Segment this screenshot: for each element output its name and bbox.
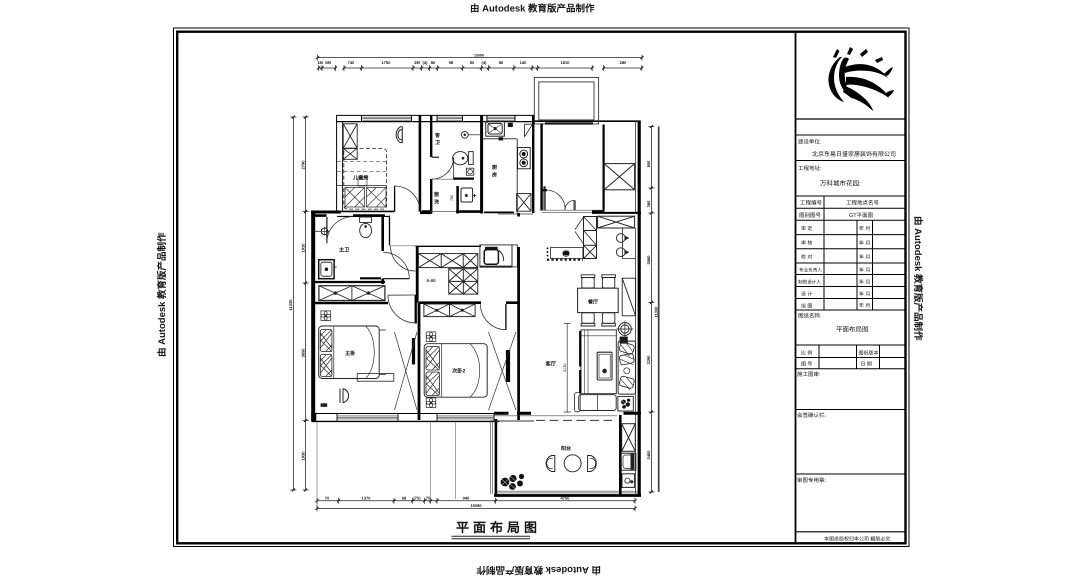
svg-text:940: 940 (463, 496, 470, 501)
svg-text:厨: 厨 (492, 164, 497, 171)
svg-text:3290: 3290 (646, 355, 651, 365)
svg-text:万科城市花园:: 万科城市花园: (820, 180, 861, 188)
svg-text:年 月: 年 月 (859, 302, 870, 309)
svg-text:3130: 3130 (563, 364, 567, 372)
svg-text:年 月: 年 月 (859, 291, 870, 298)
svg-text:图 号: 图 号 (801, 362, 812, 368)
svg-text:校 对: 校 对 (801, 254, 812, 261)
svg-text:工程编号: 工程编号 (800, 200, 823, 207)
svg-text:4750: 4750 (561, 496, 571, 501)
svg-text:餐厅: 餐厅 (587, 299, 598, 306)
svg-text:施工图审:: 施工图审: (797, 371, 821, 378)
svg-text:1750: 1750 (382, 60, 392, 65)
svg-text:740: 740 (348, 60, 355, 65)
svg-text:儿童房: 儿童房 (352, 175, 369, 182)
svg-text:2M: 2M (414, 60, 420, 65)
svg-text:房: 房 (492, 172, 497, 179)
svg-text:1370: 1370 (362, 496, 372, 501)
svg-text:专业负责人: 专业负责人 (799, 268, 822, 273)
svg-text:图别图号: 图别图号 (799, 212, 822, 219)
svg-text:工程地点名号: 工程地点名号 (846, 200, 880, 207)
svg-text:86: 86 (431, 60, 436, 65)
svg-text:比 例: 比 例 (801, 350, 812, 357)
svg-text:由 Autodesk 教育版产品制作: 由 Autodesk 教育版产品制作 (476, 564, 601, 576)
svg-text:客厅: 客厅 (546, 361, 557, 368)
svg-text:年 月: 年 月 (859, 267, 870, 274)
svg-text:11330: 11330 (288, 299, 293, 311)
svg-text:1910: 1910 (300, 243, 305, 253)
svg-text:主卫: 主卫 (339, 247, 350, 254)
svg-text:工程地址:: 工程地址: (798, 165, 822, 172)
svg-text:2660: 2660 (646, 255, 651, 265)
svg-text:68: 68 (402, 496, 407, 501)
svg-text:(4): (4) (482, 60, 488, 65)
svg-text:审 核: 审 核 (801, 240, 812, 247)
svg-text:1810: 1810 (561, 60, 571, 65)
svg-text:年 月: 年 月 (859, 225, 870, 232)
svg-text:(4): (4) (423, 60, 429, 65)
svg-text:会签确认栏:: 会签确认栏: (797, 412, 827, 419)
svg-text:11330: 11330 (654, 306, 659, 318)
svg-text:绘 图: 绘 图 (801, 303, 812, 310)
svg-text:3650: 3650 (300, 348, 305, 358)
svg-text:日 期: 日 期 (861, 361, 872, 368)
svg-text:年 月: 年 月 (859, 279, 870, 286)
svg-text:86: 86 (499, 60, 504, 65)
svg-text:图纸名称:: 图纸名称: (798, 313, 822, 320)
svg-text:卫: 卫 (435, 140, 440, 146)
svg-text:由 Autodesk 教育版产品制作: 由 Autodesk 教育版产品制作 (912, 216, 924, 341)
svg-text:洗: 洗 (434, 199, 439, 206)
svg-text:审图专用章:: 审图专用章: (797, 477, 827, 484)
svg-text:1M: 1M (317, 60, 323, 65)
svg-text:本图纸版权归本公司 翻版必究: 本图纸版权归本公司 翻版必究 (824, 536, 890, 543)
svg-text:设 计: 设 计 (801, 291, 812, 298)
svg-text:80: 80 (470, 60, 475, 65)
svg-text:主卧: 主卧 (345, 350, 356, 357)
svg-text:780: 780 (450, 195, 454, 201)
svg-text:由 Autodesk 教育版产品制作: 由 Autodesk 教育版产品制作 (156, 232, 168, 357)
svg-text:70: 70 (325, 496, 330, 501)
svg-text:阳台: 阳台 (561, 445, 571, 452)
svg-text:制图设计人: 制图设计人 (798, 280, 821, 285)
svg-text:15080: 15080 (474, 53, 484, 57)
svg-text:审 定: 审 定 (801, 225, 812, 232)
svg-text:平面布局图: 平面布局图 (456, 520, 541, 535)
svg-text:850: 850 (646, 160, 651, 167)
svg-text:A-00: A-00 (427, 278, 437, 283)
svg-text:GT平面图: GT平面图 (849, 212, 874, 219)
svg-text:15080: 15080 (470, 503, 482, 508)
svg-text:2790: 2790 (300, 160, 305, 170)
svg-text:(75): (75) (413, 496, 421, 501)
svg-text:盥: 盥 (434, 191, 439, 198)
svg-text:75: 75 (426, 496, 431, 501)
svg-text:2400: 2400 (646, 450, 651, 460)
svg-text:年 月: 年 月 (859, 254, 870, 261)
svg-text:360: 360 (646, 200, 651, 207)
svg-text:建设单位:: 建设单位: (798, 139, 822, 146)
svg-text:98: 98 (449, 60, 454, 65)
svg-text:5M: 5M (325, 60, 331, 65)
svg-text:140: 140 (520, 60, 527, 65)
svg-text:年 月: 年 月 (859, 240, 870, 247)
svg-text:图纸版本: 图纸版本 (859, 350, 879, 357)
svg-text:次卧2: 次卧2 (452, 368, 465, 375)
svg-text:平面布局图: 平面布局图 (836, 326, 869, 334)
svg-text:由 Autodesk 教育版产品制作: 由 Autodesk 教育版产品制作 (470, 3, 595, 15)
svg-text:1930: 1930 (300, 451, 305, 461)
svg-text:280: 280 (620, 60, 627, 65)
svg-text:客: 客 (434, 132, 441, 139)
svg-text:北京东易日盛家居装饰有限公司: 北京东易日盛家居装饰有限公司 (812, 150, 896, 158)
